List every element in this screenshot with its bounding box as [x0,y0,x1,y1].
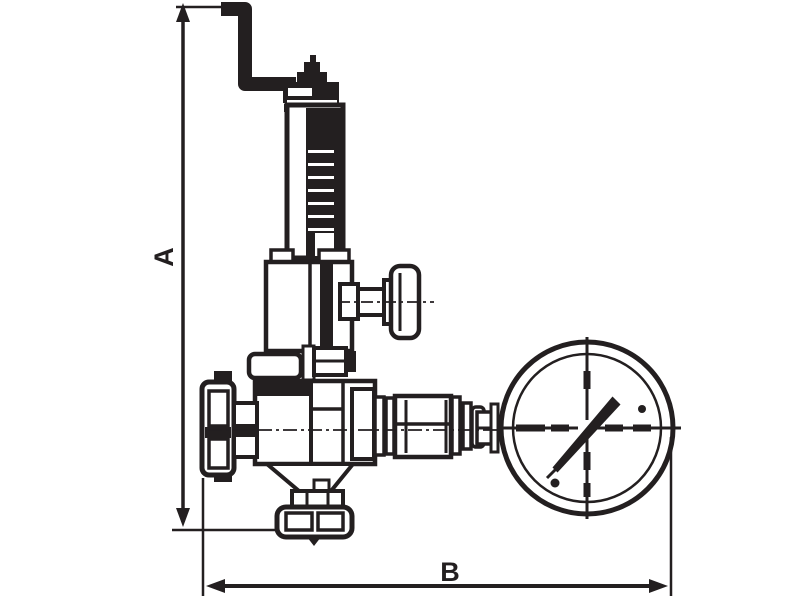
adjusting-screw-pin [297,55,327,84]
drawing-canvas: A [0,0,800,598]
arrowhead-right-icon [649,579,668,593]
dial-screw [638,405,646,413]
dimension-label-b: B [440,557,460,587]
bottom-outlet-flange [277,507,352,546]
valve-stem [320,262,333,351]
outlet-funnel [267,464,353,491]
drain-tip [307,537,321,546]
needle-stop-pin [551,479,560,488]
pressure-gauge [497,337,681,519]
union-coupling [352,389,484,459]
arrowhead-down-icon [176,508,190,527]
spring-housing [287,105,343,258]
arrowhead-left-icon [206,579,225,593]
inlet-flange [202,371,234,482]
adjusting-crank-rod [221,9,296,84]
dimension-label-a: A [149,247,179,267]
valve-technical-drawing: A [0,0,800,598]
gauge-stem [477,404,498,452]
